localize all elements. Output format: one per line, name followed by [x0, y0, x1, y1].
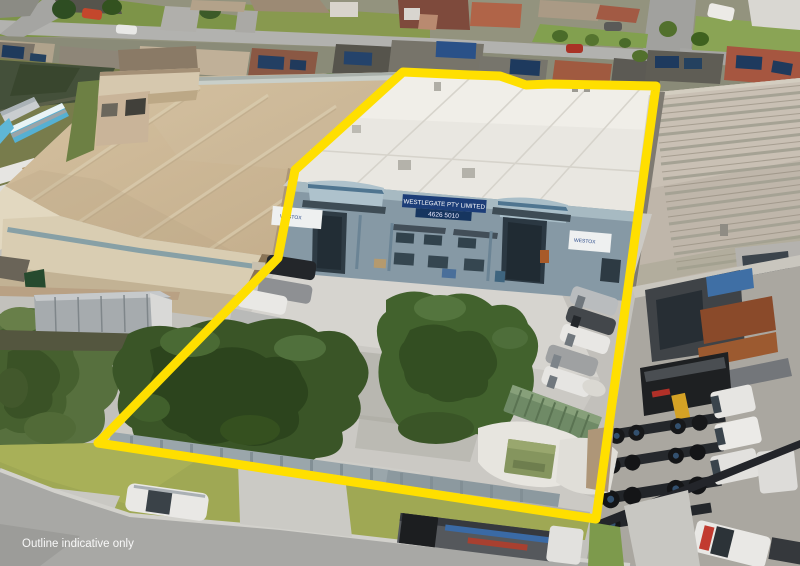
svg-text:Outline indicative only: Outline indicative only: [22, 538, 134, 550]
